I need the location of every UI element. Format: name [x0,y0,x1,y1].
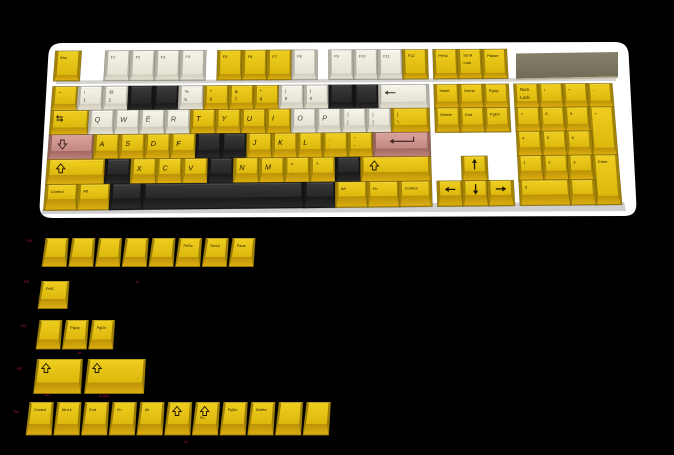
svg-text:R4: R4 [24,279,30,284]
svg-text:|: | [397,112,398,117]
svg-text:F5: F5 [223,54,228,59]
svg-text:Fn: Fn [200,416,204,420]
svg-text:O: O [297,114,303,123]
svg-text:2.25u: 2.25u [99,393,109,398]
svg-text:P: P [322,113,327,122]
svg-text:M: M [265,163,271,172]
svg-text:ScrLk: ScrLk [210,244,220,248]
svg-text:PrtSc: PrtSc [184,244,193,248]
svg-text:Home: Home [464,88,475,93]
svg-text:%: % [185,89,189,94]
svg-text:R2: R2 [17,366,23,371]
svg-text:1u: 1u [135,279,139,284]
svg-text:F4: F4 [186,54,191,59]
svg-text:@: @ [109,90,114,95]
svg-text:Esc: Esc [60,55,67,60]
svg-text:F9: F9 [334,54,339,59]
svg-text:;: ; [329,144,330,149]
svg-text:F2: F2 [136,55,141,60]
svg-text:PgDn: PgDn [97,326,107,330]
svg-text:NmLk: NmLk [62,408,72,412]
svg-text:R1: R1 [14,409,20,414]
svg-text:Alt: Alt [82,189,89,194]
svg-text:U: U [247,114,253,123]
svg-text:Lock: Lock [520,95,530,100]
svg-text:Num: Num [520,87,530,92]
svg-text:Fn: Fn [373,186,378,191]
svg-text:Lock: Lock [464,61,472,65]
svg-text:Insert: Insert [440,88,451,93]
svg-text:A: A [99,139,105,148]
svg-text:I: I [272,114,274,123]
svg-text:R3: R3 [21,323,27,328]
svg-text:Paus: Paus [237,244,246,248]
svg-text:PrtS: PrtS [46,287,54,291]
svg-text:Control: Control [34,408,46,412]
svg-text:<: < [291,161,294,166]
svg-text:,: , [290,169,291,174]
svg-text:R: R [171,114,176,123]
svg-text:&: & [235,89,238,94]
svg-text:F3: F3 [161,54,166,59]
svg-text:E: E [146,115,151,124]
svg-text::: : [329,136,330,141]
svg-text:PgDn: PgDn [490,112,500,117]
svg-text:1u: 1u [77,350,81,355]
svg-text:Enter: Enter [598,159,608,164]
svg-text:2u: 2u [45,392,49,397]
svg-text:⇆: ⇆ [56,114,64,124]
svg-text:C: C [163,164,169,173]
svg-text:1u: 1u [184,439,188,444]
svg-text:Fn: Fn [117,408,121,412]
svg-text:L: L [303,138,307,147]
svg-text:F12: F12 [408,53,416,58]
svg-text:>: > [316,161,319,166]
svg-text:Control: Control [51,189,64,194]
svg-text:F10: F10 [359,53,367,58]
svg-text:~: ~ [58,90,61,95]
svg-text:Control: Control [405,186,418,191]
svg-text:Pause: Pause [487,53,499,58]
svg-text:End: End [89,408,96,412]
svg-text:Alt: Alt [340,186,347,191]
svg-text:PgUp: PgUp [70,326,80,330]
svg-text:!: ! [84,90,85,95]
svg-text:]: ] [372,120,373,125]
svg-text:*: * [260,89,262,94]
svg-text:End: End [465,112,472,117]
svg-text:F7: F7 [272,54,277,59]
svg-text:R4: R4 [27,238,33,243]
svg-text:.: . [575,184,576,189]
svg-text:Q: Q [95,115,101,124]
svg-text:N: N [239,163,245,172]
svg-text:F8: F8 [297,54,302,59]
svg-text:Delete: Delete [256,408,267,412]
svg-text:PgUp: PgUp [489,88,500,93]
svg-text:F11: F11 [383,53,390,58]
svg-text:F: F [176,139,181,148]
svg-text:F1: F1 [111,55,116,60]
svg-text:Scroll: Scroll [463,54,472,58]
svg-text:F6: F6 [248,54,253,59]
svg-text:W: W [120,115,128,124]
svg-text:PgDn: PgDn [228,408,238,412]
svg-text:': ' [354,144,355,149]
svg-text:.: . [316,169,317,174]
svg-text:S: S [125,139,130,148]
svg-text:D: D [151,139,156,148]
svg-text:Delete: Delete [440,112,452,117]
svg-text:J: J [252,138,257,147]
svg-text:PrtSc: PrtSc [438,53,448,58]
svg-text:T: T [196,114,201,123]
